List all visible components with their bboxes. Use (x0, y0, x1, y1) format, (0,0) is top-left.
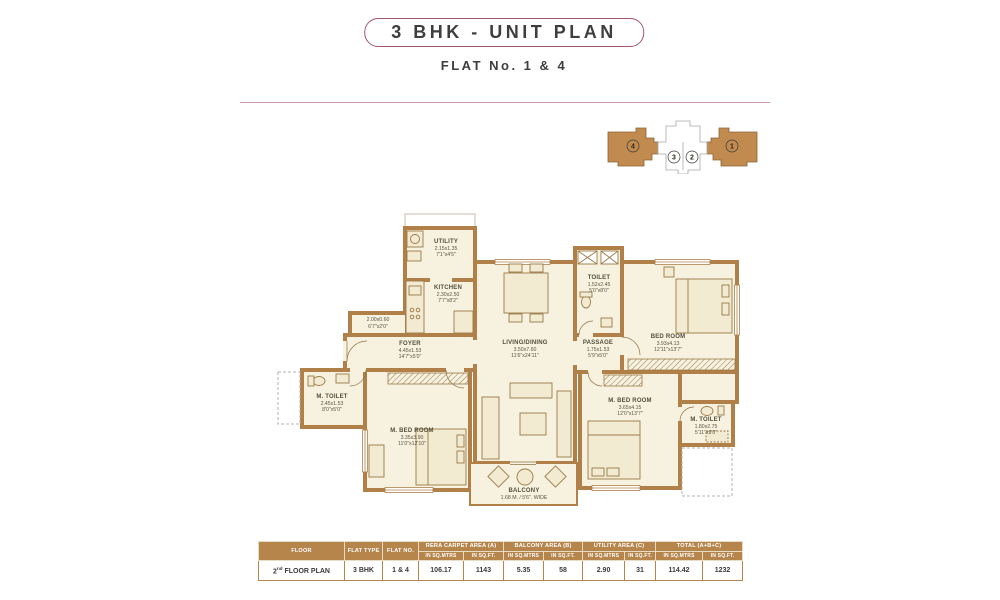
cell-utility-mtrs: 2.90 (583, 561, 625, 581)
washbasin (336, 374, 349, 383)
key-plan-flat-4: 4 (631, 144, 635, 151)
key-plan-flat-2: 2 (690, 155, 694, 162)
svg-text:8'0"x5'0": 8'0"x5'0" (322, 407, 342, 413)
washbasin (601, 318, 612, 327)
key-plan-flat-3: 3 (672, 155, 676, 162)
sub-sqmtrs: IN SQ.MTRS (656, 551, 703, 560)
cell-flat-type: 3 BHK (345, 561, 383, 581)
svg-text:5'9"x5'0": 5'9"x5'0" (588, 353, 608, 359)
key-plan-center-shape (658, 121, 707, 174)
svg-text:BED ROOM: BED ROOM (651, 334, 686, 340)
sofa-long (482, 397, 499, 459)
svg-text:5'11"x9'0": 5'11"x9'0" (695, 430, 717, 436)
svg-text:7'7"x8'2": 7'7"x8'2" (438, 298, 458, 304)
svg-text:TOILET: TOILET (588, 275, 611, 281)
svg-text:PASSAGE: PASSAGE (583, 340, 613, 346)
cell-total-mtrs: 114.42 (656, 561, 703, 581)
desk (369, 445, 384, 477)
room-label-foyer: FOYER 4.45x1.53 14'7"x5'0" (399, 341, 422, 360)
svg-text:7'1"x4'5": 7'1"x4'5" (436, 252, 456, 258)
room-dressing (680, 372, 737, 402)
header-divider (240, 102, 770, 103)
svg-text:5'0"x8'0": 5'0"x8'0" (589, 288, 609, 294)
coffee-table (520, 413, 546, 435)
exterior-ledge (278, 372, 300, 424)
col-group-utility: UTILITY AREA (C) (583, 542, 656, 552)
wc (701, 407, 713, 416)
col-flat-no: FLAT NO. (383, 542, 419, 561)
sub-sqft: IN SQ.FT. (464, 551, 504, 560)
svg-text:UTILITY: UTILITY (434, 239, 458, 245)
wc (313, 377, 325, 386)
svg-text:FOYER: FOYER (399, 341, 421, 347)
col-floor: FLOOR (259, 542, 345, 561)
svg-text:M. TOILET: M. TOILET (690, 417, 721, 423)
cell-balcony-mtrs: 5.35 (504, 561, 544, 581)
fridge (454, 311, 473, 333)
svg-text:11'6"x24'11": 11'6"x24'11" (511, 353, 539, 359)
sub-sqmtrs: IN SQ.MTRS (419, 551, 464, 560)
cell-floor: 2ndFLOOR PLAN (259, 561, 345, 581)
key-plan-flat-1: 1 (730, 144, 734, 151)
tv-unit (557, 391, 571, 457)
col-group-rera: RERA CARPET AREA (A) (419, 542, 504, 552)
svg-text:11'0"x12'10": 11'0"x12'10" (398, 441, 426, 447)
cell-balcony-ft: 58 (544, 561, 583, 581)
svg-text:6'7"x2'0": 6'7"x2'0" (368, 324, 388, 330)
table-row: 2ndFLOOR PLAN 3 BHK 1 & 4 106.17 1143 5.… (259, 561, 743, 581)
svg-text:M. BED ROOM: M. BED ROOM (390, 428, 434, 434)
unit-plan-page: 3 BHK - UNIT PLAN FLAT No. 1 & 4 4 3 2 1 (0, 0, 1000, 600)
svg-text:LIVING/DINING: LIVING/DINING (502, 340, 547, 346)
svg-text:BALCONY: BALCONY (508, 488, 539, 494)
cell-rera-mtrs: 106.17 (419, 561, 464, 581)
page-title: 3 BHK - UNIT PLAN (391, 22, 617, 42)
svg-text:14'7"x5'0": 14'7"x5'0" (399, 354, 422, 360)
wc (582, 296, 591, 308)
dining-table (504, 273, 548, 313)
key-plan: 4 3 2 1 (600, 112, 765, 174)
floor-plan: UTILITY 2.15x1.35 7'1"x4'5" KITCHEN 2.30… (270, 205, 760, 525)
cell-rera-ft: 1143 (464, 561, 504, 581)
sofa (510, 383, 552, 398)
svg-text:KITCHEN: KITCHEN (434, 285, 462, 291)
cell-total-ft: 1232 (703, 561, 743, 581)
utility-sink (407, 251, 421, 261)
room-label-niche: 2.00x0.60 6'7"x2'0" (367, 317, 390, 330)
service-area (682, 448, 732, 496)
kitchen-sink (409, 286, 421, 295)
terrace-ledge (405, 214, 475, 227)
svg-text:1.68 M. / 5'6". WIDE: 1.68 M. / 5'6". WIDE (501, 495, 548, 501)
sub-sqft: IN SQ.FT. (625, 551, 656, 560)
svg-text:M. BED ROOM: M. BED ROOM (608, 398, 652, 404)
cell-flat-no: 1 & 4 (383, 561, 419, 581)
balcony-table (517, 469, 533, 485)
room-label-kitchen: KITCHEN 2.30x2.50 7'7"x8'2" (434, 285, 462, 304)
col-group-total: TOTAL (A+B+C) (656, 542, 743, 552)
col-flat-type: FLAT TYPE (345, 542, 383, 561)
col-group-balcony: BALCONY AREA (B) (504, 542, 583, 552)
room-label-toilet: TOILET 1.52x2.45 5'0"x8'0" (588, 275, 611, 294)
svg-text:12'11"x13'7": 12'11"x13'7" (654, 347, 682, 353)
sub-sqmtrs: IN SQ.MTRS (504, 551, 544, 560)
sub-sqft: IN SQ.FT. (703, 551, 743, 560)
title-box: 3 BHK - UNIT PLAN (364, 18, 644, 47)
svg-text:2.00x0.60: 2.00x0.60 (367, 317, 390, 323)
cell-utility-ft: 31 (625, 561, 656, 581)
room-label-utility: UTILITY 2.15x1.35 7'1"x4'5" (434, 239, 458, 258)
sub-sqft: IN SQ.FT. (544, 551, 583, 560)
svg-text:M. TOILET: M. TOILET (316, 394, 347, 400)
svg-text:12'0"x13'7": 12'0"x13'7" (617, 411, 643, 417)
sub-sqmtrs: IN SQ.MTRS (583, 551, 625, 560)
page-subtitle: FLAT No. 1 & 4 (441, 58, 567, 73)
room-label-mtoilet-right: M. TOILET 1.80x2.75 5'11"x9'0" (690, 417, 721, 436)
area-spec-table: FLOOR FLAT TYPE FLAT NO. RERA CARPET ARE… (258, 541, 743, 581)
